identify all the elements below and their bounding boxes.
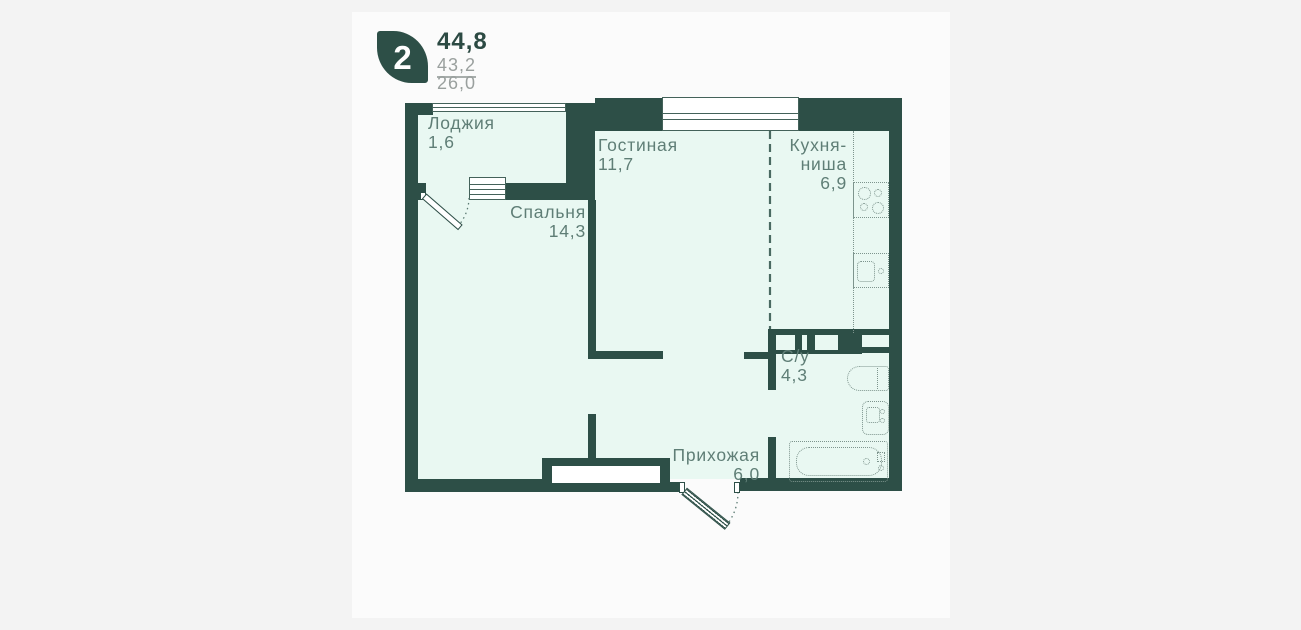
washbasin-bowl (866, 407, 880, 423)
room-name: С/у (781, 347, 810, 366)
toilet-icon (847, 366, 889, 391)
room-name: Спальня (460, 203, 586, 222)
room-name: ниша (747, 155, 847, 174)
wall-segment (588, 414, 596, 458)
wall-segment (405, 479, 545, 492)
floorplan-page: 2 44,8 43,2 26,0 (0, 0, 1301, 630)
living-label: Гостиная 11,7 (598, 136, 678, 174)
wall-segment (405, 103, 418, 492)
room-name: Гостиная (598, 136, 678, 155)
room-area: 4,3 (781, 366, 810, 385)
wall-segment (889, 131, 902, 491)
wall-segment (588, 200, 596, 359)
wall-segment (768, 329, 890, 335)
wall-segment (596, 351, 663, 359)
kitchen-label: Кухня- ниша 6,9 (747, 136, 847, 193)
duct-lip (862, 347, 890, 353)
wall-segment (506, 183, 595, 200)
living-window-line (663, 113, 798, 114)
kitchen-area: 26,0 (437, 73, 476, 94)
stove-burner-icon (860, 203, 868, 211)
room-name: Прихожая (620, 446, 760, 465)
wall-segment (744, 352, 770, 359)
stove-burner-icon (874, 189, 882, 197)
living-window-line (663, 119, 798, 120)
bathtub-drain-icon (863, 458, 870, 465)
bathtub-faucet-icon (877, 452, 885, 462)
bedroom-label: Спальня 14,3 (460, 203, 586, 241)
total-area: 44,8 (437, 28, 488, 56)
room-name: Кухня- (747, 136, 847, 155)
living-window (662, 97, 799, 131)
kitchen-sink-bowl (857, 261, 875, 282)
wall-segment (768, 437, 776, 479)
room-area: 11,7 (598, 155, 678, 174)
toilet-tank-line (877, 368, 878, 389)
wall-segment (768, 329, 776, 390)
stove-icon (853, 182, 889, 218)
duct-block (838, 335, 862, 354)
room-area: 6,9 (747, 174, 847, 193)
bedroom-window-line (470, 184, 505, 185)
stove-burner-icon (858, 187, 871, 200)
room-area: 1,6 (428, 133, 495, 152)
bathtub-faucet-icon (878, 465, 884, 471)
room-area: 6,0 (620, 465, 760, 484)
bedroom-window-line (470, 189, 505, 190)
kitchen-faucet-icon (878, 268, 884, 274)
loggia-window-line (433, 107, 565, 108)
loggia-label: Лоджия 1,6 (428, 114, 495, 152)
kitchen-counter-edge (853, 131, 854, 333)
stove-burner-icon (872, 202, 884, 214)
room-area: 14,3 (460, 222, 586, 241)
bedroom-window-line (470, 194, 505, 195)
rooms-count: 2 (393, 41, 411, 74)
hallway-label: Прихожая 6,0 (620, 446, 760, 484)
wall-segment (798, 98, 902, 131)
bathroom-label: С/у 4,3 (781, 347, 810, 385)
washbasin-faucet-icon (880, 418, 885, 423)
room-name: Лоджия (428, 114, 495, 133)
washbasin-faucet-icon (880, 409, 885, 414)
wall-segment (595, 98, 663, 131)
